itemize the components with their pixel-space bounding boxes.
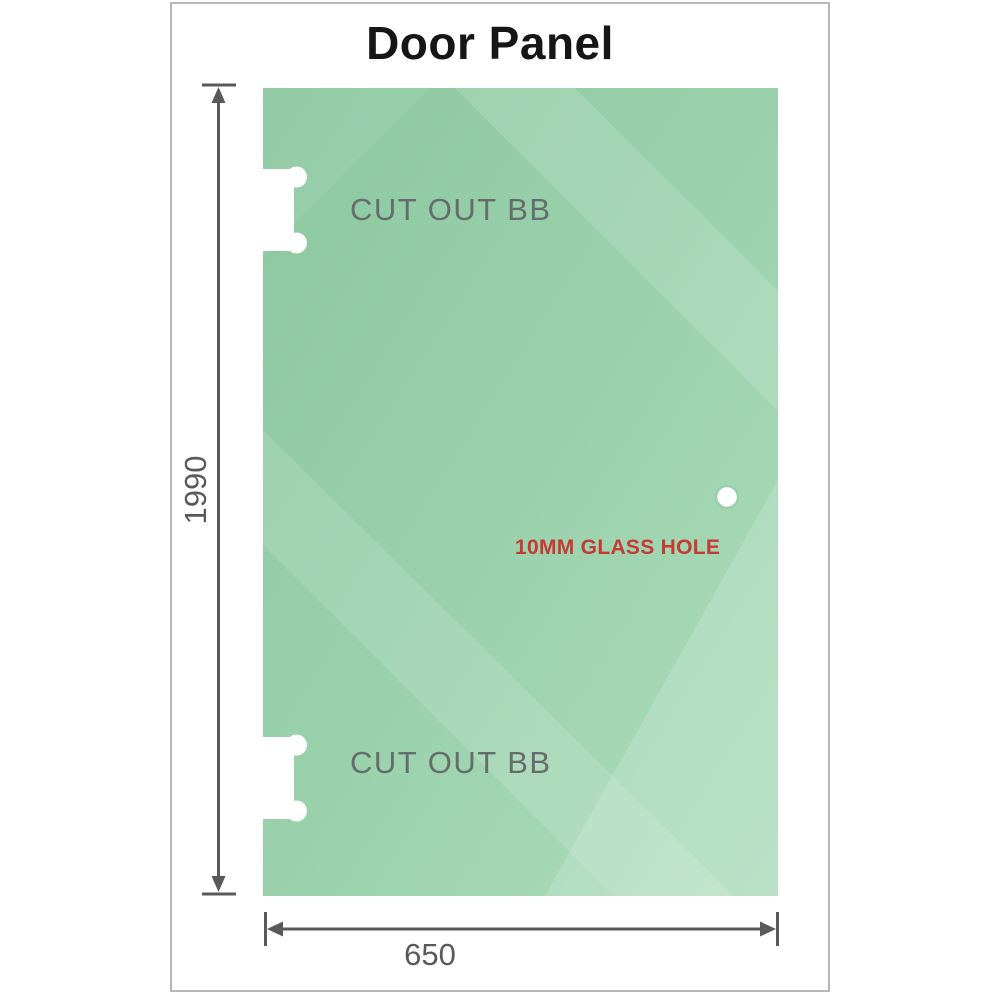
cutout-bb-bottom-label: CUT OUT BB <box>350 745 552 781</box>
glass-hole-label: 10MM GLASS HOLE <box>515 536 720 560</box>
cutout-bb-top-label: CUT OUT BB <box>350 192 552 228</box>
width-dimension-label: 650 <box>404 937 456 973</box>
image-frame-border <box>170 2 830 992</box>
height-dimension-label: 1990 <box>178 456 214 525</box>
page-title: Door Panel <box>366 16 614 70</box>
